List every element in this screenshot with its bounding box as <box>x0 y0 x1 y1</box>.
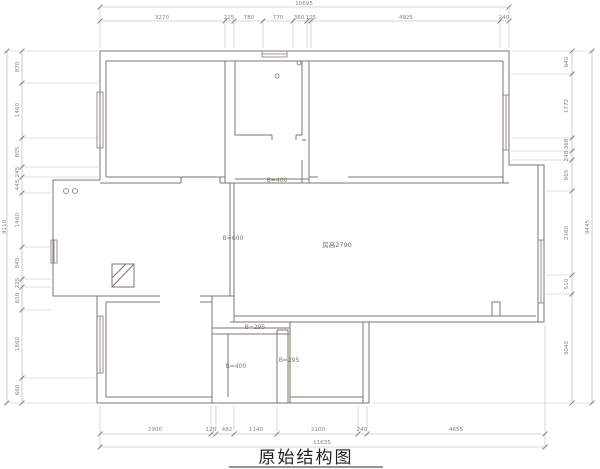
beam-label-duct: B=295 <box>279 357 300 364</box>
dim-right-segment: 640 <box>564 56 570 67</box>
dim-top-segment: 240 <box>499 15 510 21</box>
dim-top-segment: 770 <box>273 15 284 21</box>
partition-walls <box>53 61 538 403</box>
dim-left-segment: 660 <box>15 384 21 395</box>
extension-lines-top <box>100 7 509 48</box>
dim-left-segment: 1460 <box>15 212 21 227</box>
dim-left-segment: 610 <box>15 292 21 303</box>
dimension-lines <box>7 7 592 447</box>
dim-bottom-segment: 120 <box>206 427 217 433</box>
beam-label-living: B=600 <box>223 235 244 242</box>
dimension-labels-right: 9445 640 1772 368 248 865 2360 510 3040 <box>564 56 591 355</box>
dim-left-segment: 445 <box>15 179 21 190</box>
dim-bottom-total: 11635 <box>313 440 331 446</box>
window-right-upper <box>503 95 509 150</box>
dim-bottom-segment: 240 <box>357 427 368 433</box>
extension-lines-right <box>371 51 595 403</box>
window-top <box>262 51 287 57</box>
dim-right-total: 9445 <box>585 219 591 234</box>
dim-top-segment: 4925 <box>399 15 414 21</box>
window-left-entry <box>51 240 57 263</box>
dim-right-segment: 510 <box>564 278 570 289</box>
dim-bottom-segment: 1140 <box>249 427 264 433</box>
dim-top-segment: 225 <box>224 15 235 21</box>
dim-right-segment: 3040 <box>564 340 570 355</box>
dim-right-segment: 368 <box>564 138 570 149</box>
entry-circle-icon <box>73 189 78 194</box>
dim-top-segment: 360 <box>294 15 305 21</box>
floor-plan-canvas: 10695 3270 225 780 770 360 125 4925 240 … <box>0 0 600 469</box>
outer-wall <box>53 51 544 403</box>
walls <box>53 51 544 403</box>
dim-left-segment: 805 <box>15 146 21 157</box>
dim-right-segment: 248 <box>564 150 570 161</box>
dim-top-segment: 3270 <box>155 15 170 21</box>
dim-right-segment: 865 <box>564 169 570 180</box>
dimension-labels-bottom: 11635 2900 120 482 1140 2100 240 4655 <box>148 427 464 446</box>
bath-circle-icon <box>275 74 279 78</box>
dim-left-segment: 1460 <box>15 102 21 117</box>
pillar-stub <box>492 302 500 316</box>
dim-bottom-segment: 482 <box>222 427 233 433</box>
dim-left-segment: 225 <box>15 277 21 288</box>
dimension-labels-left: 9110 870 1460 805 245 445 1460 845 225 6… <box>2 61 21 395</box>
dim-bottom-segment: 2100 <box>311 427 326 433</box>
beam-label-bath-left: B=400 <box>226 363 247 370</box>
floor-plan-page: 10695 3270 225 780 770 360 125 4925 240 … <box>0 0 600 469</box>
windows <box>51 51 544 373</box>
window-right-lower <box>538 240 544 303</box>
dim-left-segment: 870 <box>15 61 21 72</box>
dimension-labels-top: 10695 3270 225 780 770 360 125 4925 240 <box>155 1 510 21</box>
entry-circle-icon <box>64 189 69 194</box>
room-height-label: 房高2790 <box>322 240 352 249</box>
window-left-lower <box>97 316 103 373</box>
dim-top-segment: 780 <box>244 15 255 21</box>
dim-left-total: 9110 <box>2 219 8 234</box>
closet-symbol <box>112 264 134 287</box>
drawing-title: 原始结构图 <box>259 448 354 467</box>
dim-bottom-segment: 2900 <box>148 427 163 433</box>
dim-left-segment: 1860 <box>15 336 21 351</box>
dim-bottom-segment: 4655 <box>449 427 464 433</box>
dim-top-segment: 125 <box>306 15 317 21</box>
dim-left-segment: 845 <box>15 257 21 268</box>
dim-top-total: 10695 <box>295 1 313 7</box>
beam-label-bath-top: B=295 <box>245 324 266 331</box>
fixture-circles <box>64 61 302 194</box>
interior-labels: B=400 B=600 房高2790 B=295 B=400 B=295 <box>223 177 352 370</box>
dim-left-segment: 245 <box>15 166 21 177</box>
beam-label-hall: B=400 <box>267 177 288 184</box>
dim-right-segment: 2360 <box>564 225 570 240</box>
window-left-upper <box>97 92 103 148</box>
extension-lines <box>5 7 595 449</box>
dim-right-segment: 1772 <box>564 99 570 113</box>
bath-circle-icon <box>297 61 301 65</box>
tick-marks <box>5 5 595 450</box>
